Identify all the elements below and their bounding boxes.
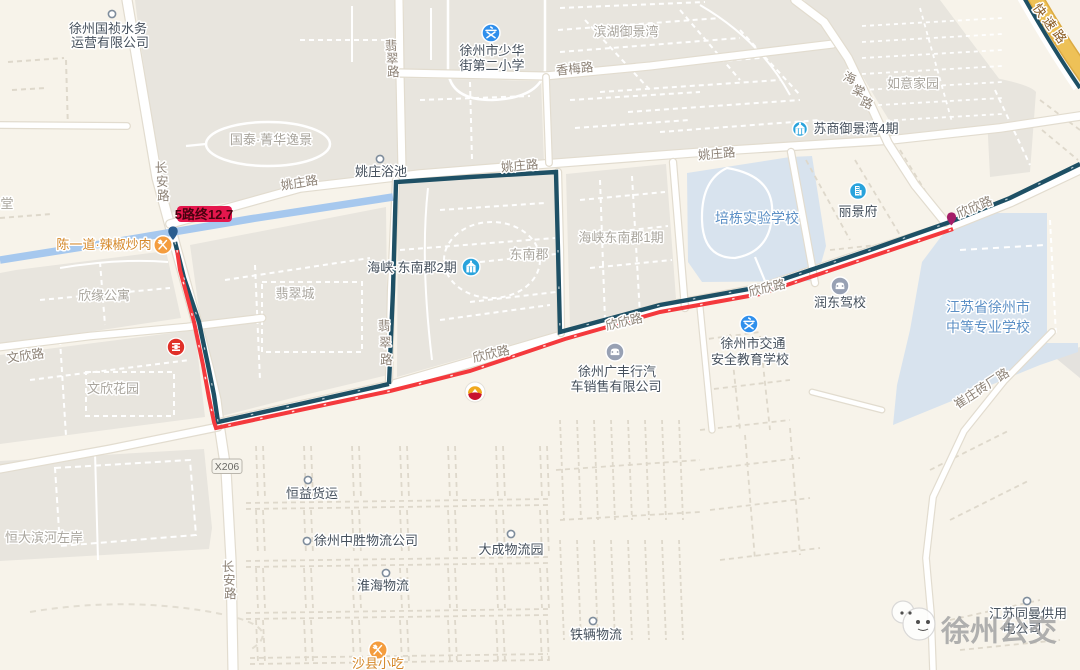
svg-text:路: 路 bbox=[157, 188, 170, 203]
svg-text:丽景府: 丽景府 bbox=[838, 204, 877, 219]
svg-text:路: 路 bbox=[387, 64, 400, 79]
svg-text:江苏省徐州市: 江苏省徐州市 bbox=[946, 299, 1030, 315]
svg-text:翡: 翡 bbox=[385, 39, 398, 53]
svg-text:欣缘公寓: 欣缘公寓 bbox=[78, 288, 130, 303]
svg-text:国泰·菁华逸景: 国泰·菁华逸景 bbox=[230, 132, 312, 147]
svg-text:街第二小学: 街第二小学 bbox=[459, 58, 524, 73]
svg-text:培栋实验学校: 培栋实验学校 bbox=[715, 210, 799, 226]
svg-text:徐州市少华: 徐州市少华 bbox=[459, 43, 524, 58]
svg-text:苏商御景湾4期: 苏商御景湾4期 bbox=[813, 121, 898, 136]
svg-text:恒益货运: 恒益货运 bbox=[286, 486, 338, 501]
svg-text:徐州中胜物流公司: 徐州中胜物流公司 bbox=[314, 533, 418, 548]
svg-text:徐州市交通: 徐州市交通 bbox=[720, 336, 785, 351]
svg-text:铁辆物流: 铁辆物流 bbox=[570, 627, 622, 642]
svg-text:长: 长 bbox=[222, 560, 235, 574]
svg-text:5路终12.7: 5路终12.7 bbox=[175, 207, 234, 222]
svg-text:淮海物流: 淮海物流 bbox=[357, 578, 409, 593]
svg-text:长: 长 bbox=[155, 161, 168, 175]
svg-text:安: 安 bbox=[223, 573, 236, 588]
svg-text:海峡东南郡1期: 海峡东南郡1期 bbox=[578, 230, 663, 245]
svg-text:文欣花园: 文欣花园 bbox=[87, 381, 139, 396]
svg-text:滨湖御景湾: 滨湖御景湾 bbox=[593, 24, 658, 39]
svg-text:中等专业学校: 中等专业学校 bbox=[946, 319, 1030, 335]
svg-text:沙县小吃: 沙县小吃 bbox=[352, 656, 404, 670]
svg-text:安全教育学校: 安全教育学校 bbox=[711, 352, 789, 367]
svg-text:车销售有限公司: 车销售有限公司 bbox=[570, 379, 661, 394]
svg-text:堂: 堂 bbox=[0, 196, 13, 211]
svg-text:姚庄浴池: 姚庄浴池 bbox=[355, 164, 407, 179]
svg-text:如意家园: 如意家园 bbox=[887, 76, 939, 91]
svg-text:翡翠城: 翡翠城 bbox=[275, 286, 314, 301]
svg-text:X206: X206 bbox=[215, 461, 240, 473]
svg-text:海峡·东南郡2期: 海峡·东南郡2期 bbox=[367, 260, 457, 275]
svg-text:安: 安 bbox=[156, 174, 169, 189]
svg-text:徐州国祯水务: 徐州国祯水务 bbox=[69, 21, 147, 36]
svg-text:恒大滨河左岸: 恒大滨河左岸 bbox=[5, 530, 83, 545]
svg-text:徐州公交: 徐州公交 bbox=[940, 614, 1057, 648]
svg-text:徐州广丰行汽: 徐州广丰行汽 bbox=[578, 364, 656, 379]
svg-text:陈一道·辣椒炒肉: 陈一道·辣椒炒肉 bbox=[56, 237, 151, 252]
svg-text:运营有限公司: 运营有限公司 bbox=[71, 35, 149, 50]
svg-text:路: 路 bbox=[224, 586, 237, 601]
svg-text:翠: 翠 bbox=[386, 52, 399, 66]
svg-text:大成物流园: 大成物流园 bbox=[478, 542, 543, 557]
svg-text:翡: 翡 bbox=[378, 319, 391, 333]
svg-text:翠: 翠 bbox=[379, 336, 392, 350]
svg-text:路: 路 bbox=[380, 352, 393, 367]
svg-text:东南郡: 东南郡 bbox=[509, 247, 548, 262]
svg-text:润东驾校: 润东驾校 bbox=[814, 295, 866, 310]
